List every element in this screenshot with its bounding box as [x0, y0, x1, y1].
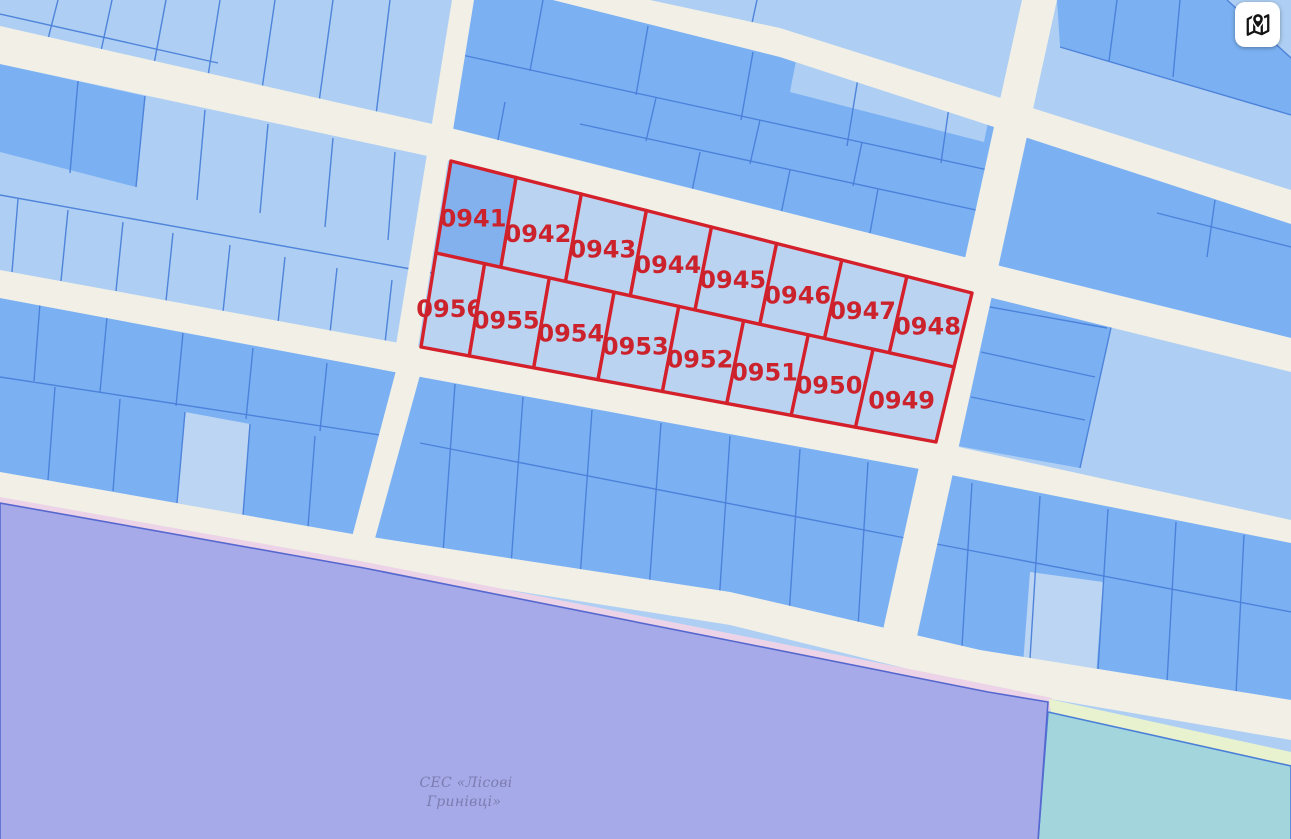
cadastral-map[interactable]: СЕС «Лісові Гринівці» 094109420943094409… — [0, 0, 1291, 839]
parcel-label-0945: 0945 — [699, 266, 766, 294]
parcel-label-0948: 0948 — [894, 312, 961, 340]
parcel-label-0955: 0955 — [473, 306, 540, 334]
map-style-button[interactable] — [1235, 2, 1280, 47]
parcel-label-0949: 0949 — [868, 386, 935, 414]
parcel-label-0943: 0943 — [569, 235, 636, 263]
parcel-label-0954: 0954 — [537, 319, 604, 347]
cadastral-map-viewport[interactable]: СЕС «Лісові Гринівці» 094109420943094409… — [0, 0, 1291, 839]
map-location-icon — [1244, 11, 1272, 39]
parcel-label-0946: 0946 — [764, 282, 831, 310]
parcel-label-0942: 0942 — [505, 220, 572, 248]
parcel-label-0941: 0941 — [440, 205, 507, 233]
parcel-label-0952: 0952 — [667, 346, 734, 374]
parcel-label-0944: 0944 — [634, 251, 701, 279]
parcel-label-0947: 0947 — [829, 297, 896, 325]
zone-label-line2: Гринівці» — [426, 794, 502, 810]
parcel-region — [177, 412, 250, 515]
parcel-label-0951: 0951 — [731, 359, 798, 387]
parcel-label-0950: 0950 — [796, 372, 863, 400]
parcel-label-0953: 0953 — [602, 333, 669, 361]
zone-label-line1: СЕС «Лісові — [419, 775, 512, 791]
